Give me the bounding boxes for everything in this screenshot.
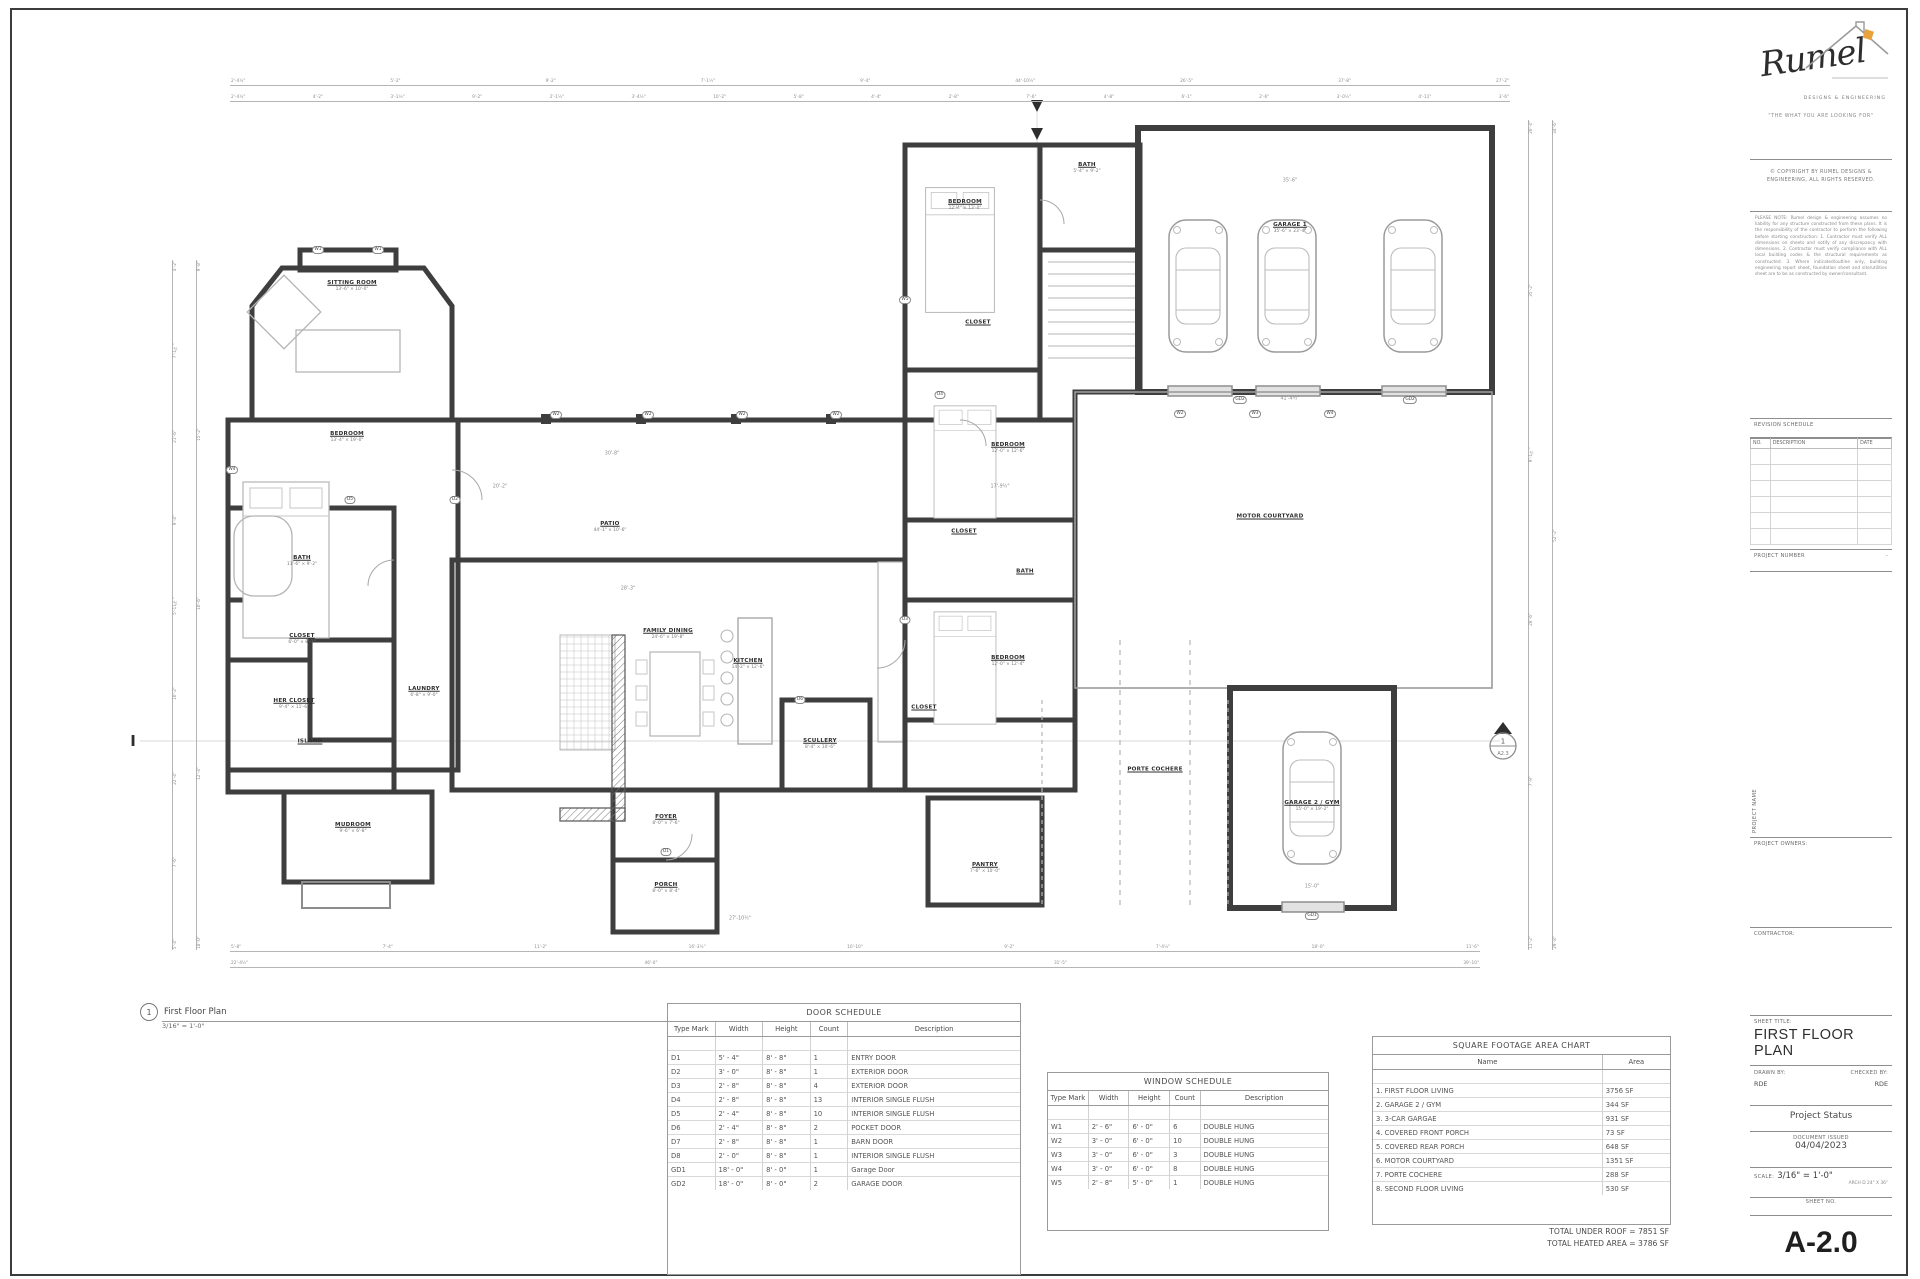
opening-tag: D3 — [899, 616, 910, 624]
plan-dim-text: 28'-3" — [619, 587, 636, 594]
checked-by-value: RDE — [1875, 1080, 1888, 1088]
contractor-section: CONTRACTOR: — [1750, 928, 1892, 1016]
sheet-number: A-2.0 — [1784, 1226, 1857, 1260]
callout-title: First Floor Plan — [164, 1007, 227, 1017]
plan-dim-text: 41'-4½" — [1279, 397, 1301, 404]
roof-sketch-icon — [1804, 20, 1890, 90]
logo-section: Rumel DESIGNS & ENGINEERING "THE WHAT YO… — [1750, 10, 1892, 160]
copyright-line-2: ENGINEERING, ALL RIGHTS RESERVED. — [1767, 177, 1875, 183]
sheet-no-section: A-2.0 — [1750, 1216, 1892, 1270]
opening-tag: D6 — [794, 696, 805, 704]
opening-tag: W4 — [226, 466, 238, 474]
copyright-line-1: © COPYRIGHT BY RUMEL DESIGNS & — [1770, 169, 1872, 175]
copyright-section: © COPYRIGHT BY RUMEL DESIGNS & ENGINEERI… — [1750, 160, 1892, 212]
revision-table: NO.DESCRIPTIONDATE — [1750, 438, 1892, 550]
area-chart-title: SQUARE FOOTAGE AREA CHART — [1373, 1037, 1670, 1055]
opening-tag: D2 — [449, 496, 460, 504]
project-name-vertical-label: PROJECT NAME — [1752, 789, 1758, 833]
opening-tag: W1 — [372, 246, 384, 254]
plan-dim-text: 30'-8" — [603, 452, 620, 459]
opening-tag: W3 — [1249, 410, 1261, 418]
opening-tag: D4 — [934, 391, 945, 399]
project-number-value: - — [1882, 550, 1892, 559]
scale-section: SCALE: 3/16" = 1'-0" ARCH D 24" X 36" — [1750, 1168, 1892, 1198]
disclaimer-text: PLEASE NOTE: Rumel design & engineering … — [1750, 212, 1892, 282]
drawn-checked-section: DRAWN BY: RDE CHECKED BY: RDE — [1750, 1066, 1892, 1106]
window-schedule-table: WINDOW SCHEDULE Type MarkWidthHeightCoun… — [1047, 1072, 1329, 1231]
plan-dim-text: 35'-6" — [1281, 179, 1298, 186]
area-chart-table: SQUARE FOOTAGE AREA CHART NameArea1. FIR… — [1372, 1036, 1671, 1225]
plan-dim-text: 27'-10½" — [727, 917, 752, 924]
drawn-by-value: RDE — [1754, 1080, 1767, 1088]
door-schedule-title: DOOR SCHEDULE — [668, 1004, 1020, 1022]
sheet-title-section: SHEET TITLE: FIRST FLOOR PLAN — [1750, 1016, 1892, 1066]
opening-tag: W2 — [642, 411, 654, 419]
opening-tag: D5 — [344, 496, 355, 504]
project-number-row: PROJECT NUMBER - — [1750, 550, 1892, 572]
plan-dim-text: 20'-2" — [491, 485, 508, 492]
scale-value: 3/16" = 1'-0" — [1777, 1171, 1833, 1181]
status-section: Project Status — [1750, 1106, 1892, 1132]
opening-tag: W4 — [1324, 410, 1336, 418]
opening-tag: W2 — [1174, 410, 1186, 418]
opening-tag: W2 — [830, 411, 842, 419]
opening-tag: W2 — [550, 411, 562, 419]
drawing-sheet: 1 A2.3 I 2'-4½"5'-2"9'-2"7'-1½"9'-4"44'-… — [0, 0, 1920, 1279]
opening-tag: W2 — [736, 411, 748, 419]
callout-number: 1 — [140, 1003, 158, 1021]
opening-tag: W1 — [312, 246, 324, 254]
opening-tag: GD2 — [1403, 396, 1417, 404]
sheet-no-label-row: SHEET NO. — [1750, 1198, 1892, 1216]
project-status: Project Status — [1750, 1106, 1892, 1121]
sheet-size-note: ARCH D 24" X 36" — [1750, 1181, 1892, 1186]
title-block: Rumel DESIGNS & ENGINEERING "THE WHAT YO… — [1750, 10, 1892, 1270]
window-schedule-title: WINDOW SCHEDULE — [1048, 1073, 1328, 1091]
project-name-section: PROJECT NAME — [1750, 572, 1892, 838]
opening-tag: W5 — [899, 296, 911, 304]
brand-tagline: "THE WHAT YOU ARE LOOKING FOR" — [1750, 114, 1892, 119]
plan-dim-text: 15'-0" — [1303, 885, 1320, 892]
document-issued-section: DOCUMENT ISSUED 04/04/2023 — [1750, 1132, 1892, 1168]
revision-header: REVISION SCHEDULE — [1750, 418, 1892, 438]
disclaimer-section: PLEASE NOTE: Rumel design & engineering … — [1750, 212, 1892, 418]
project-owners-section: PROJECT OWNERS: — [1750, 838, 1892, 928]
sheet-title: FIRST FLOOR PLAN — [1750, 1025, 1892, 1061]
opening-tag: D1 — [660, 848, 671, 856]
brand-subtitle: DESIGNS & ENGINEERING — [1804, 96, 1886, 101]
area-chart-totals: TOTAL UNDER ROOF = 7851 SFTOTAL HEATED A… — [1372, 1226, 1669, 1250]
opening-tag: GD2 — [1233, 396, 1247, 404]
door-schedule-table: DOOR SCHEDULE Type MarkWidthHeightCountD… — [667, 1003, 1021, 1275]
plan-dim-text: 17'-9½" — [989, 485, 1011, 492]
document-issued-date: 04/04/2023 — [1750, 1141, 1892, 1151]
opening-tag: GD1 — [1305, 912, 1319, 920]
